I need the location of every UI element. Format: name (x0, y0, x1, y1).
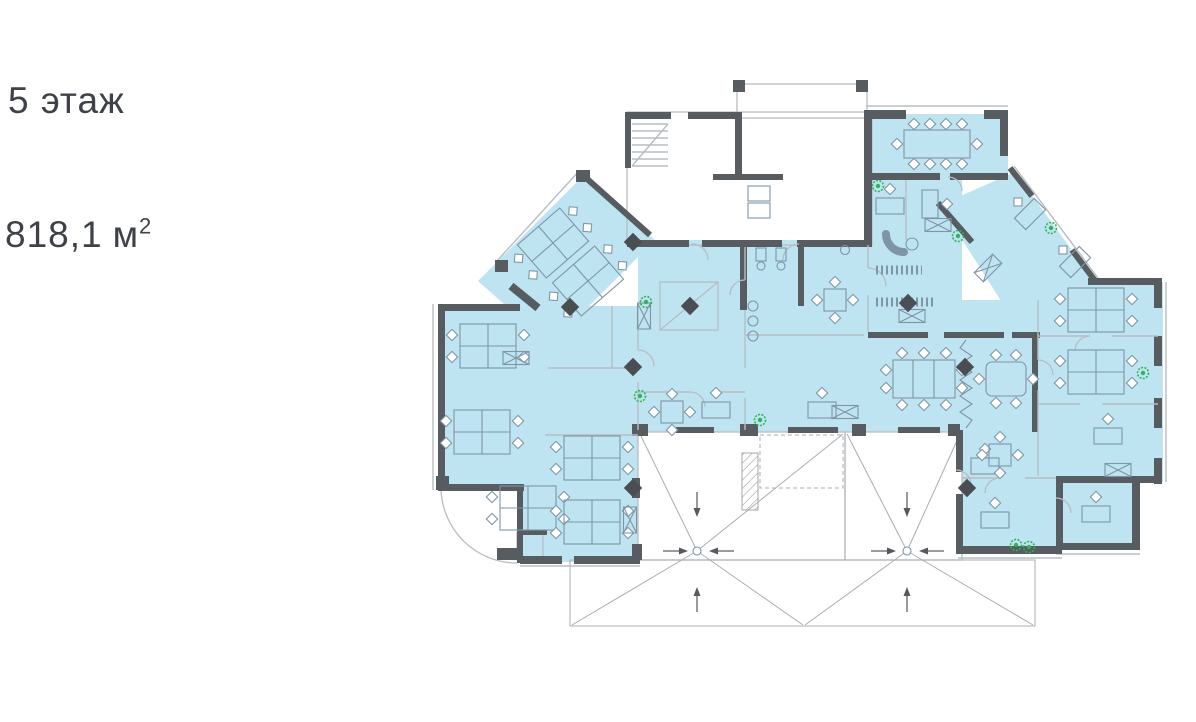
shaft-hatched (742, 453, 758, 510)
roof-drainage-arrows (663, 492, 944, 612)
leasable-area-fill (440, 114, 1163, 562)
floor-plan-drawing (0, 0, 1196, 722)
roof-outer-outline (570, 560, 1035, 626)
page: 5 этаж 818,1м2 (0, 0, 1196, 722)
roof-drain-right (903, 547, 911, 555)
stair-steps (632, 124, 668, 166)
roof-dashed-zone (760, 435, 843, 488)
roof-drain-left (693, 547, 701, 555)
balcony-outline (737, 84, 867, 118)
